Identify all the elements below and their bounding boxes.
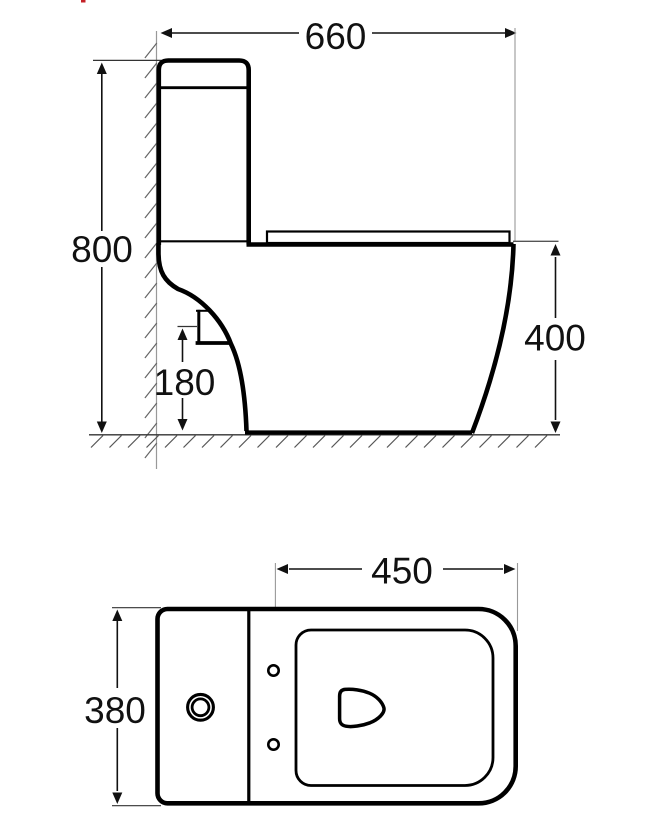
svg-text:380: 380 xyxy=(84,690,146,731)
svg-text:660: 660 xyxy=(305,16,367,57)
svg-text:400: 400 xyxy=(524,318,586,359)
svg-text:450: 450 xyxy=(371,551,433,592)
svg-text:180: 180 xyxy=(154,362,216,403)
svg-text:800: 800 xyxy=(71,229,133,270)
